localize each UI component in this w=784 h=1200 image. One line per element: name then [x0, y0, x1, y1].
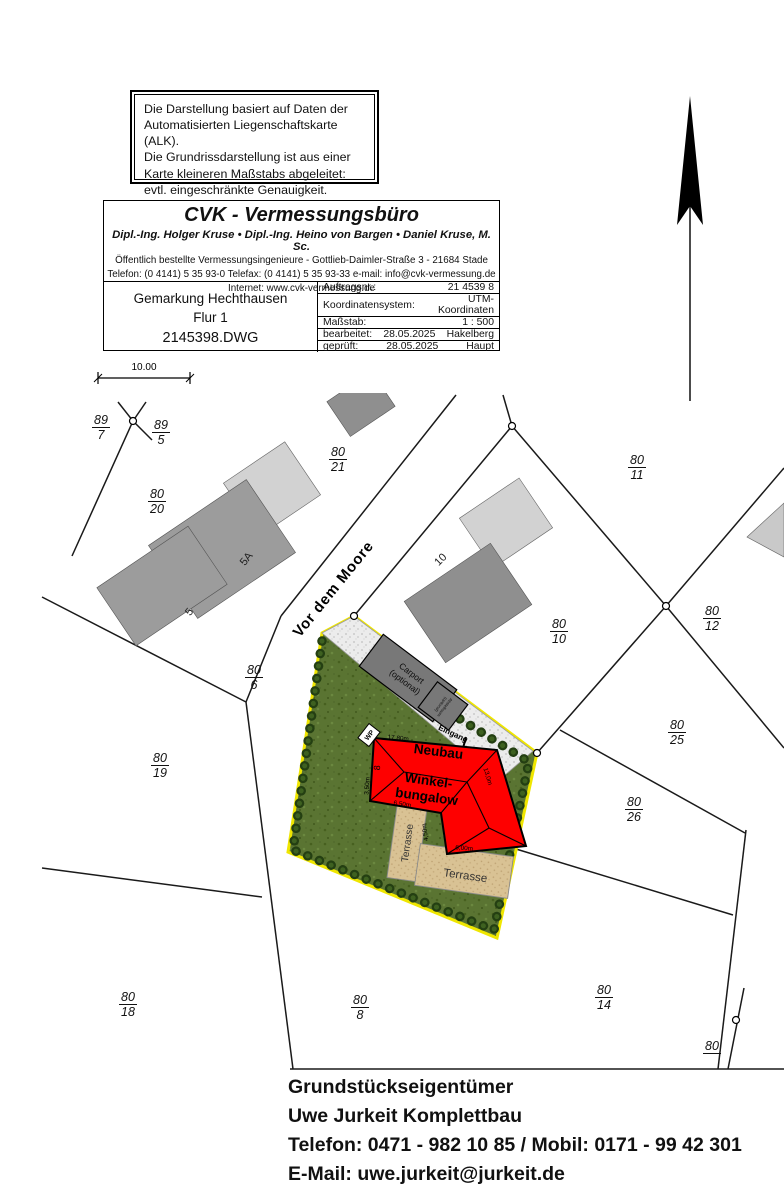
parcel-denominator: 18 — [121, 1005, 135, 1019]
owner-contact-block: Grundstückseigentümer Uwe Jurkeit Komple… — [288, 1073, 742, 1189]
parcel-denominator: 19 — [153, 766, 167, 780]
parcel-label-80-19: 80 19 — [151, 751, 169, 780]
parcel-denominator: 5 — [158, 433, 165, 447]
parcel-numerator: 80 — [630, 453, 644, 467]
boundary-line — [728, 988, 744, 1069]
boundary-line — [281, 395, 456, 616]
parcel-label-80-11: 80 11 — [628, 453, 646, 482]
boundary-line — [516, 849, 733, 915]
owner-heading: Grundstückseigentümer — [288, 1073, 742, 1102]
parcel-numerator: 80 — [247, 663, 261, 677]
parcel-label-80-25: 80 25 — [668, 718, 686, 747]
boundary-point — [733, 1017, 740, 1024]
parcel-numerator: 89 — [154, 418, 168, 432]
parcel-denominator: 21 — [330, 460, 345, 474]
scale-bar-label: 10.00 — [131, 362, 156, 373]
cadastral-map: 10.00 — [0, 0, 784, 1200]
parcel-denominator: 12 — [705, 619, 719, 633]
boundary-point — [509, 423, 516, 430]
dimension-left: 3,50m — [363, 777, 371, 795]
boundary-point — [351, 613, 358, 620]
boundary-line — [560, 730, 745, 833]
boundary-line — [42, 868, 262, 897]
parcel-label-80-8: 80 8 — [351, 993, 369, 1022]
boundary-line — [718, 830, 746, 1069]
parcel-denominator: 10 — [552, 632, 566, 646]
parcel-label-89-7: 89 7 — [92, 413, 110, 442]
parcel-numerator: 80 — [705, 604, 719, 618]
building-10 — [404, 543, 532, 663]
parcel-denominator: 26 — [626, 810, 641, 824]
owner-email: E-Mail: uwe.jurkeit@jurkeit.de — [288, 1160, 742, 1189]
parcel-label-80-partial: 80 — [703, 1039, 721, 1054]
parcel-denominator: 25 — [669, 733, 684, 747]
house-number-10: 10 — [432, 551, 449, 568]
building-fragment-right — [747, 503, 784, 557]
parcel-label-89-5: 89 5 — [152, 418, 170, 447]
parcel-numerator: 80 — [331, 445, 345, 459]
owner-phone: Telefon: 0471 - 982 10 85 / Mobil: 0171 … — [288, 1131, 742, 1160]
parcel-denominator: 6 — [251, 678, 258, 692]
parcel-denominator: 14 — [597, 998, 611, 1012]
parcel-numerator: 80 — [670, 718, 684, 732]
parcel-numerator: 80 — [150, 487, 164, 501]
parcel-denominator: 7 — [98, 428, 106, 442]
parcel-label-80-6: 80 6 — [245, 663, 263, 692]
parcel-label-80-10: 80 10 — [550, 617, 568, 646]
boundary-point — [534, 750, 541, 757]
boundary-point — [663, 603, 670, 610]
subject-plot: Carport (optional) Abstellraum (optional… — [288, 616, 537, 938]
boundary-line — [246, 702, 293, 1069]
parcel-numerator: 80 — [705, 1039, 719, 1053]
parcel-label-80-14: 80 14 — [595, 983, 613, 1012]
site-plan-page: Die Darstellung basiert auf Daten der Au… — [0, 0, 784, 1200]
parcel-numerator: 80 — [597, 983, 611, 997]
parcel-label-80-21: 80 21 — [329, 445, 347, 474]
parcel-label-80-20: 80 20 — [148, 487, 166, 516]
north-arrow-icon — [677, 96, 703, 401]
building-fragment — [327, 371, 395, 436]
parcel-numerator: 80 — [627, 795, 641, 809]
parcel-label-80-26: 80 26 — [625, 795, 643, 824]
parcel-numerator: 80 — [353, 993, 367, 1007]
parcel-label-80-18: 80 18 — [119, 990, 137, 1019]
dimension-left-2: 8 — [372, 765, 382, 771]
parcel-numerator: 80 — [552, 617, 566, 631]
parcel-numerator: 89 — [94, 413, 108, 427]
parcel-numerator: 80 — [153, 751, 167, 765]
scale-bar: 10.00 — [94, 362, 194, 384]
parcel-denominator: 20 — [149, 502, 164, 516]
boundary-line — [503, 395, 512, 426]
owner-name: Uwe Jurkeit Komplettbau — [288, 1102, 742, 1131]
parcel-denominator: 8 — [357, 1008, 364, 1022]
parcel-denominator: 11 — [631, 468, 644, 482]
parcel-numerator: 80 — [121, 990, 135, 1004]
parcel-label-80-12: 80 12 — [703, 604, 721, 633]
boundary-point — [130, 418, 137, 425]
